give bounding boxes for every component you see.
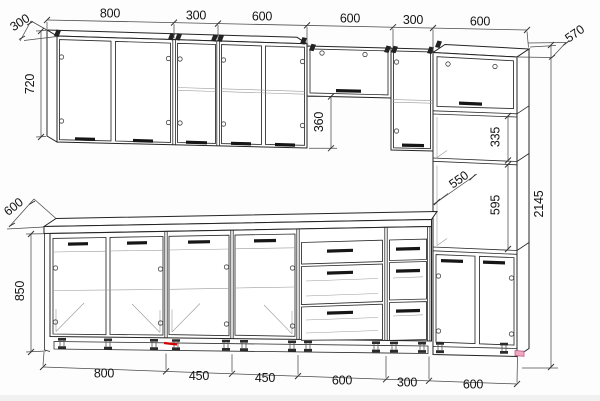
dim-bottom-800: 800 <box>94 367 115 381</box>
dim-top-600b: 600 <box>340 12 361 26</box>
dim-bottom-600: 600 <box>332 374 353 388</box>
dim-bottom-450b: 450 <box>255 371 276 385</box>
base-cabinet-450-1 <box>169 235 229 336</box>
tall-cabinet-right-side <box>517 49 529 357</box>
drawer-front <box>390 302 427 341</box>
dim-total-height: 2145 <box>532 190 546 217</box>
dim-top-300b: 300 <box>403 13 424 27</box>
flip-up-door <box>310 49 388 95</box>
drawer-unit-300 <box>390 239 427 340</box>
tall-base-door <box>480 256 515 345</box>
wall-door <box>178 43 216 143</box>
dim-wall-height: 720 <box>23 74 37 95</box>
tall-base-door <box>436 255 475 344</box>
wall-door <box>266 46 305 145</box>
wall-run-left-gable <box>47 30 57 142</box>
red-marker <box>164 343 177 345</box>
drawer-front <box>302 264 383 305</box>
dim-top-600c: 600 <box>470 14 491 28</box>
dim-top-600: 600 <box>252 10 273 24</box>
dim-top-300: 300 <box>186 8 207 22</box>
drawer-front <box>390 262 427 301</box>
dim-bottom-600b: 600 <box>463 378 484 392</box>
flip-up-door <box>437 57 514 109</box>
technical-drawing-canvas: 800 300 600 600 300 600 800 450 450 600 … <box>0 0 600 401</box>
base-cabinet-450-2 <box>235 234 295 336</box>
dim-bottom-450: 450 <box>189 369 210 383</box>
dim-top-800: 800 <box>100 7 121 21</box>
base-door <box>110 237 163 336</box>
pink-marker <box>515 351 524 357</box>
wall-cabinet-300-right <box>391 48 433 151</box>
dim-niche-height: 595 <box>489 195 503 216</box>
base-door <box>169 235 229 336</box>
wall-door <box>116 41 171 142</box>
drawer-front <box>302 304 383 340</box>
dim-shelf-section: 335 <box>489 127 503 148</box>
wall-door <box>60 40 112 141</box>
tall-cabinet <box>433 45 529 357</box>
dim-base-height: 850 <box>13 281 27 302</box>
wall-door <box>222 45 262 145</box>
dim-bottom-300: 300 <box>397 375 418 389</box>
wall-cabinet-300-left <box>178 43 216 143</box>
bottom-edge-band <box>0 395 600 401</box>
dim-hood-gap: 360 <box>312 112 326 133</box>
base-door <box>235 234 295 336</box>
drawer-unit-600 <box>302 240 383 340</box>
kitchen-elevation-drawing: 800 300 600 600 300 600 800 450 450 600 … <box>0 0 600 401</box>
